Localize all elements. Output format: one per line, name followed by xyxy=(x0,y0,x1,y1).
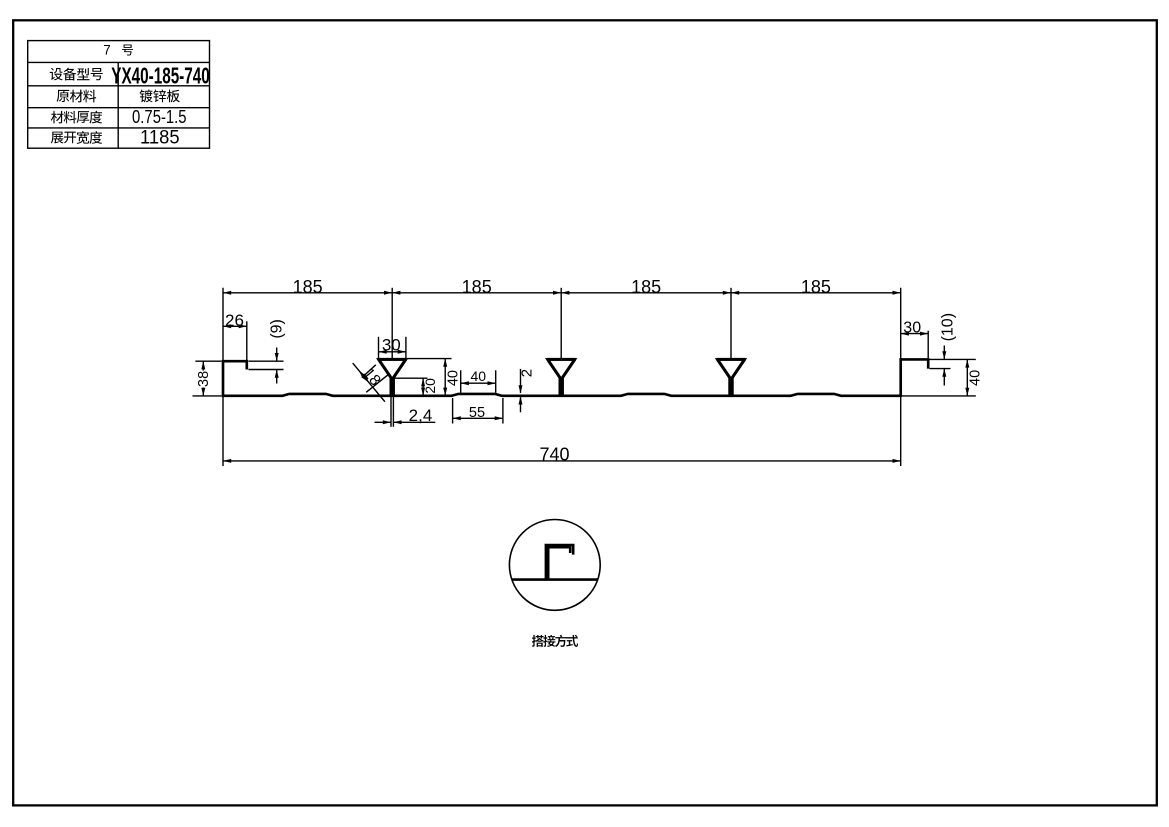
svg-text:7: 7 xyxy=(103,43,111,58)
svg-text:40: 40 xyxy=(445,370,461,386)
svg-text:1185: 1185 xyxy=(140,127,180,148)
svg-text:26: 26 xyxy=(225,311,244,330)
svg-text:30: 30 xyxy=(903,319,921,336)
svg-text:(9): (9) xyxy=(268,319,285,339)
svg-text:40: 40 xyxy=(471,368,487,384)
svg-text:185: 185 xyxy=(631,277,661,297)
svg-text:40: 40 xyxy=(968,370,984,386)
svg-text:YX40-185-740: YX40-185-740 xyxy=(111,64,210,90)
svg-text:740: 740 xyxy=(539,445,569,465)
svg-text:185: 185 xyxy=(462,277,492,297)
svg-text:2,4: 2,4 xyxy=(409,406,433,425)
svg-text:38: 38 xyxy=(196,371,212,387)
svg-text:2: 2 xyxy=(519,369,536,377)
svg-text:55: 55 xyxy=(469,405,485,421)
svg-text:0.75-1.5: 0.75-1.5 xyxy=(132,106,187,127)
svg-text:30: 30 xyxy=(382,335,401,354)
svg-text:185: 185 xyxy=(293,277,323,297)
svg-text:20: 20 xyxy=(422,378,438,394)
svg-text:(10): (10) xyxy=(939,313,956,341)
svg-text:185: 185 xyxy=(801,277,831,297)
